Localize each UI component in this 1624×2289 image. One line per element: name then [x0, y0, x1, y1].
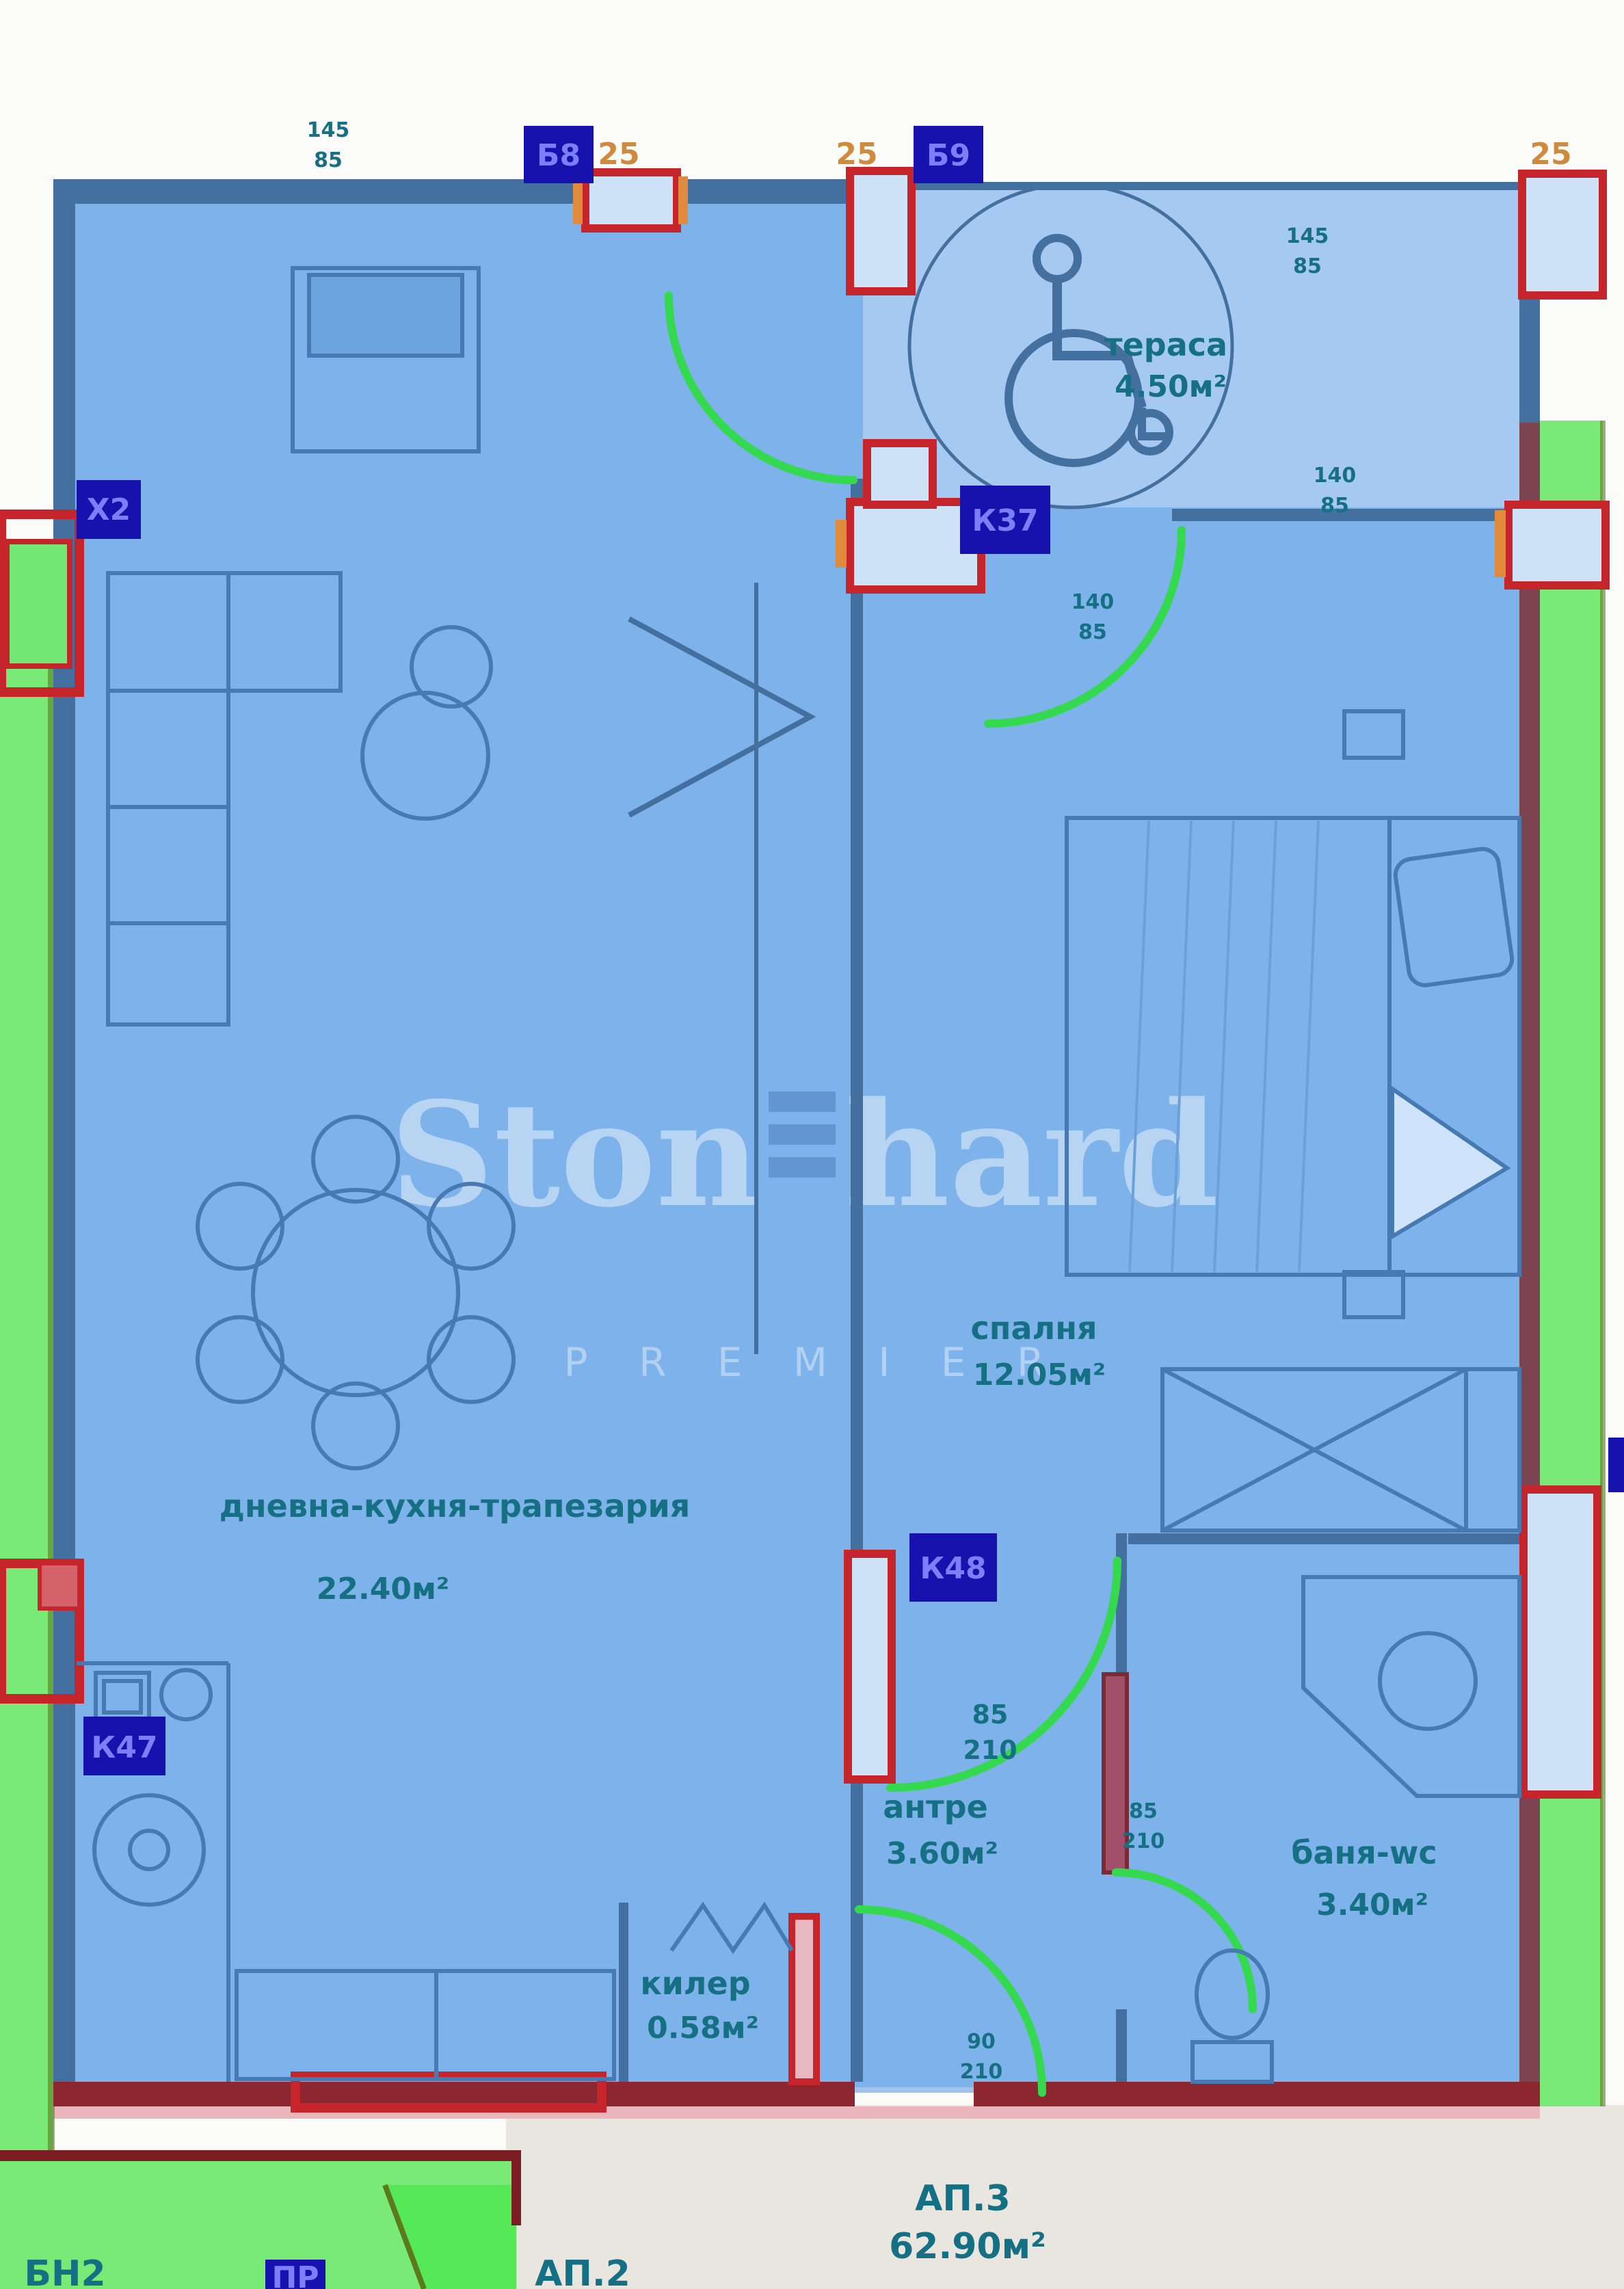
dim-win-right-2: 85 [1320, 494, 1349, 518]
bath-left-wall-top [1116, 1533, 1127, 1674]
dim-25-left: 25 [598, 137, 639, 172]
k37-column-small [867, 443, 933, 505]
interior-wall-vertical [851, 479, 863, 1554]
dim-win-right-1: 140 [1314, 464, 1357, 488]
neighbour-terrace-wall-side [511, 2150, 521, 2225]
dim-door-entrance-2: 210 [960, 2060, 1003, 2084]
badge-k47-label: К47 [91, 1730, 157, 1765]
bedroom-name: спалня [970, 1310, 1097, 1347]
dim-k37-1: 140 [1071, 590, 1115, 614]
left-wall [53, 179, 75, 2094]
badge-top-left-label: Б8 [537, 138, 581, 173]
floor-plan-canvas: Ston hard P R E M I E R [0, 0, 1624, 2289]
bottom-wall-right [974, 2082, 1540, 2106]
neighbour-terrace-wall-top [0, 2150, 521, 2161]
dim-door-hall-2: 210 [1122, 1829, 1165, 1853]
dim-25-right: 25 [1530, 137, 1571, 172]
closet-column [792, 1916, 816, 2082]
dim-door-entrance-1: 90 [967, 2030, 996, 2054]
bath-area: 3.40м² [1316, 1888, 1428, 1922]
living-name: дневна-кухня-трапезария [219, 1487, 691, 1524]
top-window-tick-right [678, 176, 688, 224]
watermark-brand-left: Ston [390, 1070, 760, 1239]
k48-column [848, 1554, 892, 1779]
interior-wall-vertical-bottom [851, 1778, 863, 2082]
dim-door-k48-1: 85 [972, 1699, 1009, 1730]
terrace-area: 4.50м² [1115, 369, 1227, 404]
left-garden-strip [0, 594, 53, 2162]
right-garden-strip [1540, 421, 1603, 2106]
terrace-name: тераса [1104, 326, 1227, 363]
dim-win-terrace-2: 85 [1293, 254, 1322, 278]
hall-area: 3.60м² [886, 1836, 998, 1871]
badge-k37-label: К37 [972, 503, 1038, 538]
entrance-threshold [855, 2087, 974, 2093]
bath-top-wall [1128, 1533, 1519, 1544]
dim-win-top-left-1: 145 [307, 118, 350, 142]
apartment-3-area: 62.90м² [889, 2226, 1046, 2267]
watermark-logo-icon [769, 1091, 836, 1178]
floor-plan-image: Ston hard P R E M I E R [0, 0, 1624, 2289]
x2-window-glass [7, 542, 70, 666]
dim-door-k48-2: 210 [963, 1735, 1017, 1765]
top-wall [53, 179, 860, 204]
right-column-tick [1495, 510, 1506, 577]
dim-door-hall-1: 85 [1129, 1799, 1158, 1823]
k37-tick [836, 520, 847, 568]
hall-name: антре [883, 1788, 988, 1825]
badge-k48-label: К48 [920, 1551, 986, 1586]
right-wall-column [1508, 505, 1606, 585]
apartment-3-label: АП.3 [915, 2178, 1011, 2219]
right-wall [1519, 423, 1540, 2094]
closet-name: килер [640, 1965, 750, 2002]
watermark-brand-right: hard [845, 1070, 1219, 1239]
badge-bottom-label: ПР [271, 2260, 319, 2289]
bath-left-wall-bottom [1116, 2009, 1127, 2082]
bottom-wall-left [53, 2082, 855, 2106]
dim-25-mid: 25 [836, 137, 877, 172]
kitchen-window-post [40, 1563, 79, 1609]
top-mid-column [850, 171, 911, 291]
badge-top-right-label: Б9 [927, 138, 970, 173]
right-garden-border [1600, 421, 1606, 2106]
top-window-frame [585, 172, 677, 228]
bath-name: баня-wc [1291, 1834, 1437, 1871]
top-window-tick-left [573, 176, 583, 224]
badge-x2-label: Х2 [87, 492, 131, 527]
bedroom-area: 12.05м² [973, 1358, 1106, 1392]
corner-unit-label: БН2 [24, 2253, 105, 2289]
living-area: 22.40м² [317, 1572, 449, 1606]
bedroom-window-frame [1523, 1490, 1597, 1795]
apartment-2-label: АП.2 [535, 2253, 630, 2289]
outside-beige [506, 2105, 1624, 2289]
dim-win-top-left-2: 85 [314, 148, 343, 172]
dim-win-terrace-1: 145 [1286, 224, 1329, 248]
closet-wall [619, 1903, 628, 2082]
top-right-column [1522, 174, 1603, 295]
badge-right-edge [1608, 1438, 1624, 1492]
closet-area: 0.58м² [647, 2011, 759, 2046]
plinth-pink-line [53, 2106, 1540, 2119]
dim-k37-2: 85 [1078, 620, 1107, 644]
